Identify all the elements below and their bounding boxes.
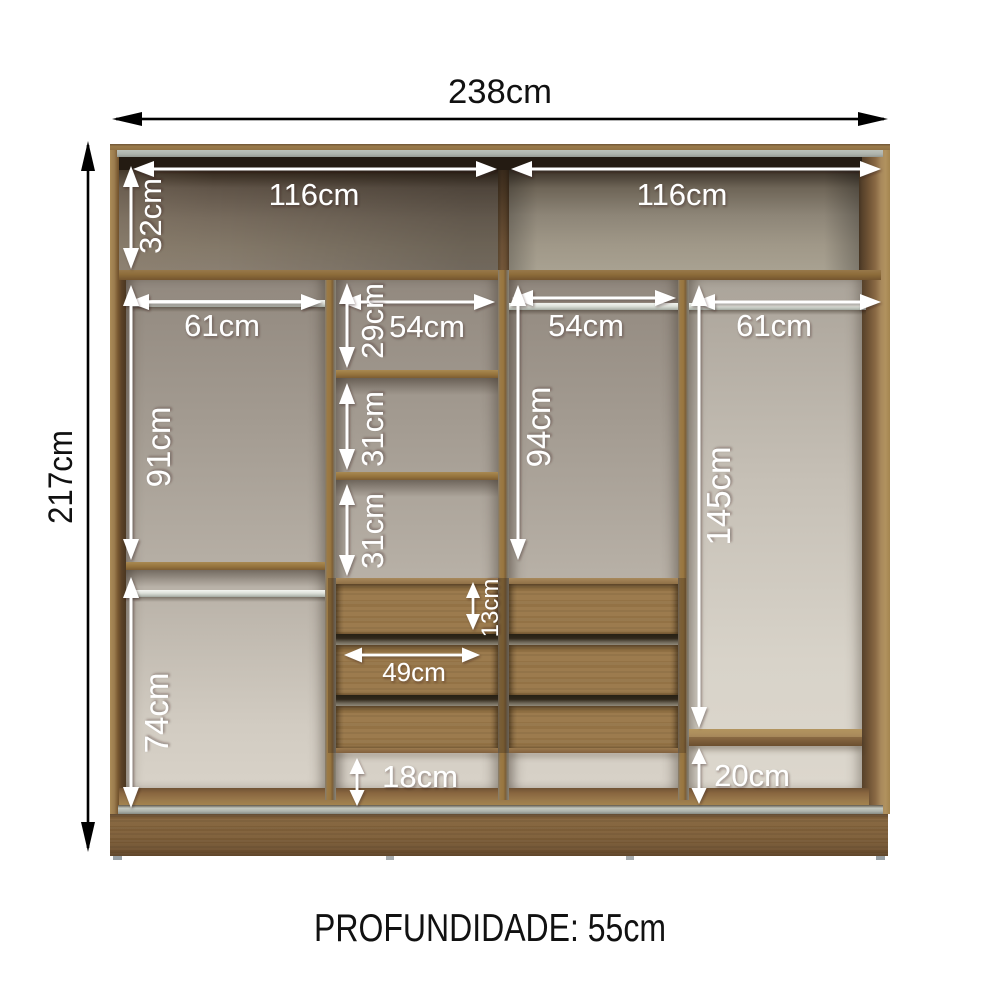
svg-text:61cm: 61cm [184, 308, 260, 343]
svg-text:116cm: 116cm [269, 177, 360, 212]
svg-text:238cm: 238cm [448, 73, 552, 111]
svg-text:94cm: 94cm [520, 387, 557, 468]
svg-text:31cm: 31cm [355, 391, 390, 467]
svg-text:116cm: 116cm [637, 177, 728, 212]
svg-text:29cm: 29cm [355, 283, 390, 359]
svg-text:13cm: 13cm [477, 579, 504, 638]
svg-text:18cm: 18cm [382, 759, 458, 794]
svg-text:32cm: 32cm [133, 178, 168, 254]
svg-text:61cm: 61cm [736, 308, 812, 343]
svg-text:91cm: 91cm [140, 407, 177, 488]
svg-text:54cm: 54cm [389, 309, 465, 344]
svg-text:145cm: 145cm [700, 446, 737, 545]
svg-text:54cm: 54cm [548, 308, 624, 343]
svg-text:49cm: 49cm [382, 657, 446, 687]
svg-text:74cm: 74cm [138, 673, 175, 754]
svg-text:217cm: 217cm [42, 430, 80, 524]
svg-text:31cm: 31cm [355, 493, 390, 569]
svg-text:PROFUNDIDADE: 55cm: PROFUNDIDADE: 55cm [314, 907, 666, 950]
svg-text:20cm: 20cm [714, 758, 790, 793]
